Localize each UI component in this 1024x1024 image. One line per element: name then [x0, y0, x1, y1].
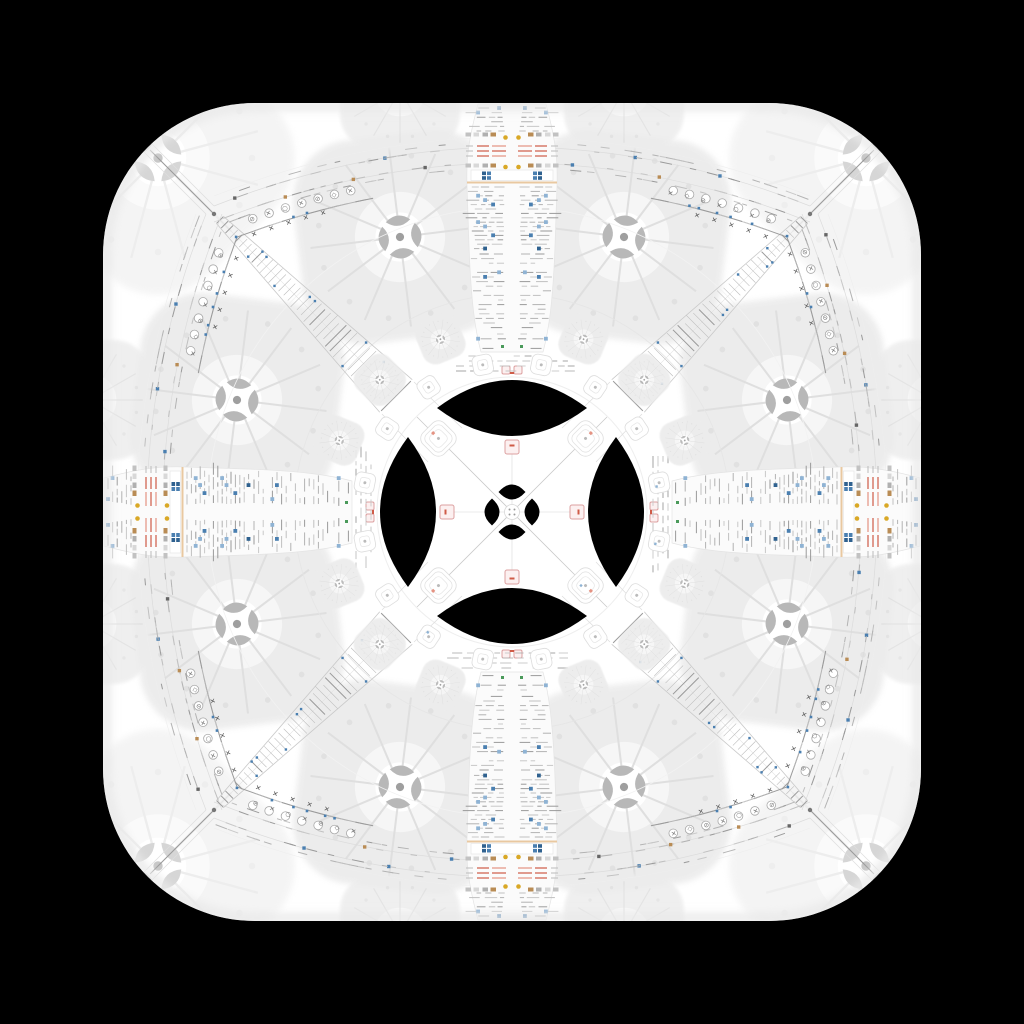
cardinal-spoke-2 — [463, 650, 562, 920]
ring-tile — [647, 530, 671, 554]
ring-tile — [530, 647, 554, 671]
medallion-core — [505, 505, 520, 520]
cardinal-spoke-1 — [650, 463, 920, 562]
ring-tile — [530, 353, 554, 377]
ring-tile — [353, 471, 377, 495]
pink-marker — [505, 440, 519, 454]
cardinal-spoke-3 — [104, 463, 374, 562]
ring-tile — [353, 530, 377, 554]
pink-marker — [505, 570, 519, 584]
pink-marker — [440, 505, 454, 519]
ring-tile — [647, 471, 671, 495]
kaleidoscope-image: ⊘⊘✕✕○○✕✕⊘⊘◇◇✕✕✕✕✕✕✕✕✕✕✕✕ — [0, 0, 1024, 1024]
ring-tile — [471, 647, 495, 671]
cardinal-spoke-0 — [463, 104, 562, 374]
app-squircle — [0, 0, 1024, 1024]
ring-tile — [471, 353, 495, 377]
screenshot-canvas: ⊘⊘✕✕○○✕✕⊘⊘◇◇✕✕✕✕✕✕✕✕✕✕✕✕ — [0, 0, 1024, 1024]
pink-marker — [570, 505, 584, 519]
